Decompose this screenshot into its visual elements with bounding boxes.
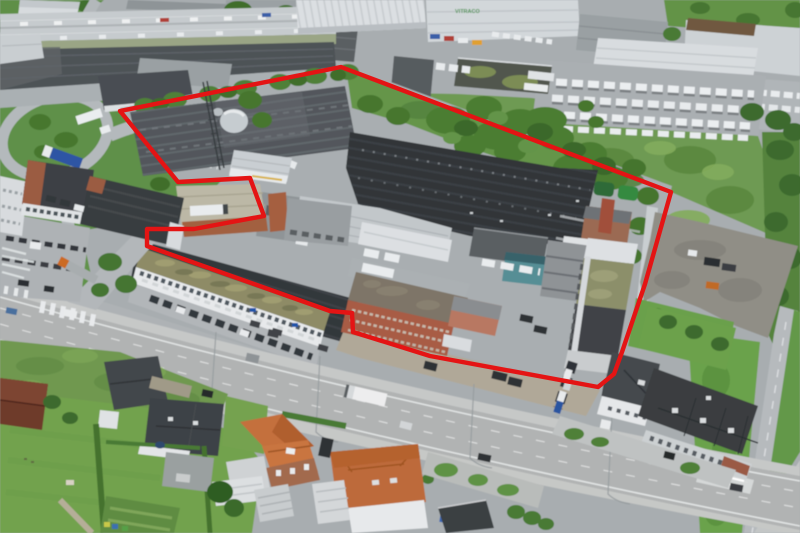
svg-text:VITRACO: VITRACO xyxy=(455,9,480,15)
